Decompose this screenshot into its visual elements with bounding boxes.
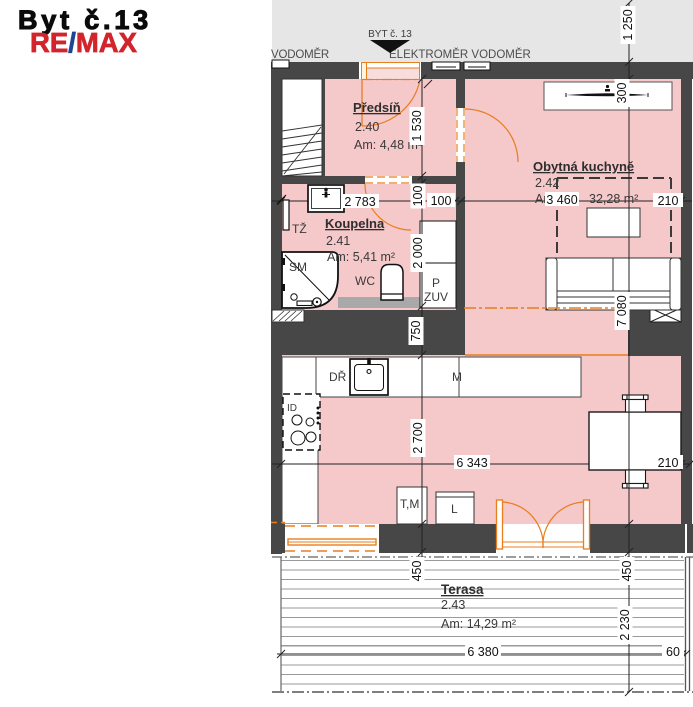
svg-text:2.40: 2.40 xyxy=(355,120,379,134)
svg-text:P: P xyxy=(432,276,440,290)
svg-text:450: 450 xyxy=(410,561,424,582)
svg-text:Předsíň: Předsíň xyxy=(353,100,401,115)
svg-text:TŽ: TŽ xyxy=(292,221,307,236)
svg-text:210: 210 xyxy=(658,194,679,208)
svg-text:60: 60 xyxy=(666,645,680,659)
svg-text:BYT č. 13: BYT č. 13 xyxy=(368,29,412,40)
svg-text:ZUV: ZUV xyxy=(424,290,448,304)
svg-text:100: 100 xyxy=(411,186,425,207)
svg-text:Obytná kuchyně: Obytná kuchyně xyxy=(533,159,634,174)
svg-text:2.43: 2.43 xyxy=(441,598,465,612)
svg-text:1 530: 1 530 xyxy=(410,110,424,141)
svg-text:DŘ: DŘ xyxy=(329,369,347,384)
svg-text:1 250: 1 250 xyxy=(621,9,635,40)
svg-text:2 230: 2 230 xyxy=(618,609,632,640)
svg-text:Am: 14,29 m²: Am: 14,29 m² xyxy=(441,617,516,631)
svg-text:2 700: 2 700 xyxy=(411,422,425,453)
svg-text:6 380: 6 380 xyxy=(467,645,498,659)
svg-text:ID: ID xyxy=(287,403,297,414)
svg-text:WC: WC xyxy=(355,274,375,288)
svg-text:Am: 5,41 m²: Am: 5,41 m² xyxy=(327,250,395,264)
svg-text:ELEKTROMĚR VODOMĚR: ELEKTROMĚR VODOMĚR xyxy=(389,48,531,61)
svg-text:M: M xyxy=(452,370,462,384)
svg-text:32,28 m²: 32,28 m² xyxy=(589,192,638,206)
svg-text:450: 450 xyxy=(620,561,634,582)
svg-text:300: 300 xyxy=(615,83,629,104)
svg-text:Koupelna: Koupelna xyxy=(325,216,385,231)
svg-text:VODOMĚR: VODOMĚR xyxy=(271,48,329,61)
svg-text:2 000: 2 000 xyxy=(411,237,425,268)
svg-text:2.41: 2.41 xyxy=(326,234,350,248)
svg-text:750: 750 xyxy=(409,321,423,342)
svg-text:Terasa: Terasa xyxy=(441,582,484,597)
svg-text:2.42: 2.42 xyxy=(535,176,559,190)
svg-text:100: 100 xyxy=(431,194,452,208)
svg-text:7 080: 7 080 xyxy=(615,295,629,326)
svg-text:6 343: 6 343 xyxy=(456,456,487,470)
svg-text:SM: SM xyxy=(289,260,307,274)
svg-text:3 460: 3 460 xyxy=(546,193,577,207)
svg-text:210: 210 xyxy=(658,456,679,470)
svg-text:T,M: T,M xyxy=(400,497,419,511)
svg-text:RE/MAX: RE/MAX xyxy=(30,27,138,58)
svg-text:2 783: 2 783 xyxy=(344,195,375,209)
svg-text:L: L xyxy=(451,502,458,516)
